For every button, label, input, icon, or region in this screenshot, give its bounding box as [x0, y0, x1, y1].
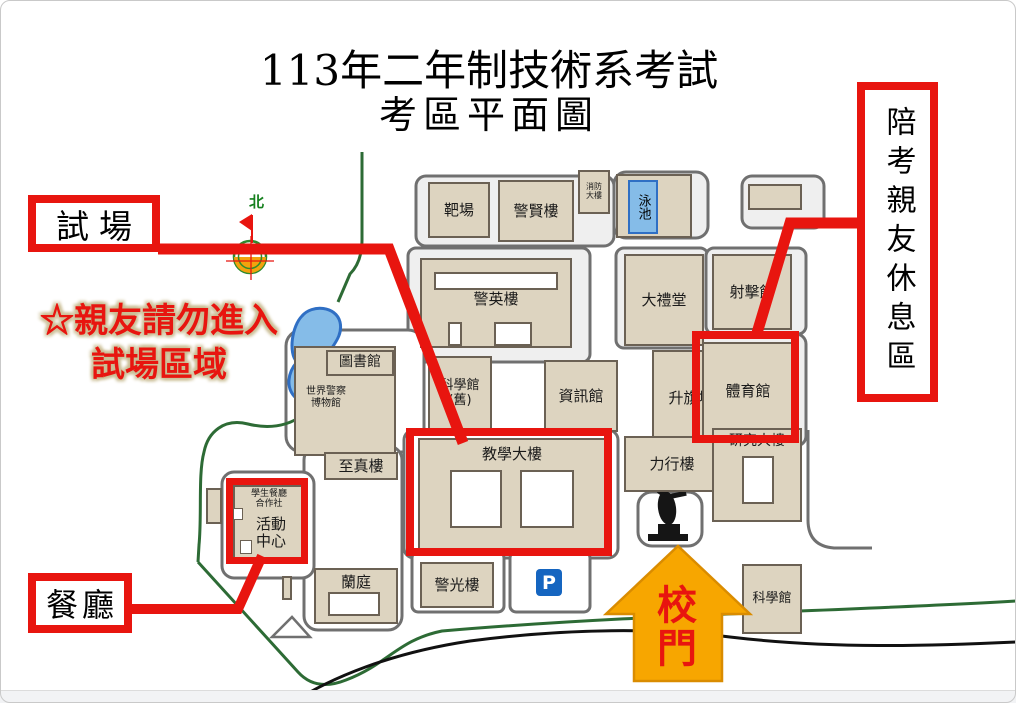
- activity-center-highlight: [226, 478, 308, 564]
- rest-area-callout: 陪考親友休息區: [857, 82, 938, 402]
- school-gate-text: 校門: [654, 575, 702, 679]
- title-line1: 113年二年制技術系考試: [0, 48, 978, 94]
- gymnasium-highlight: [692, 331, 799, 443]
- restaurant-callout: 餐廳: [28, 573, 132, 633]
- teaching-building-highlight: [406, 428, 612, 556]
- warning-line1: ☆親友請勿進入: [14, 299, 304, 343]
- annotations-layer: 113年二年制技術系考試 考區平面圖 試場 ☆親友請勿進入 試場區域 餐廳 陪考…: [0, 0, 1016, 703]
- campus-map-page: 靶場 警賢樓 消防 大樓 泳池 警英樓 大禮堂 射擊館 科學館 (舊) 資訊館 …: [0, 0, 1016, 703]
- title-line2: 考區平面圖: [0, 94, 978, 138]
- warning-line2: 試場區域: [14, 343, 304, 387]
- warning-text: ☆親友請勿進入 試場區域: [14, 299, 304, 387]
- bottom-strip: [0, 690, 1016, 703]
- page-title: 113年二年制技術系考試 考區平面圖: [0, 48, 978, 138]
- restaurant-text: 餐廳: [46, 580, 118, 626]
- exam-site-text: 試場: [56, 200, 142, 248]
- exam-site-callout: 試場: [28, 195, 160, 252]
- rest-area-text: 陪考親友休息區: [876, 106, 920, 379]
